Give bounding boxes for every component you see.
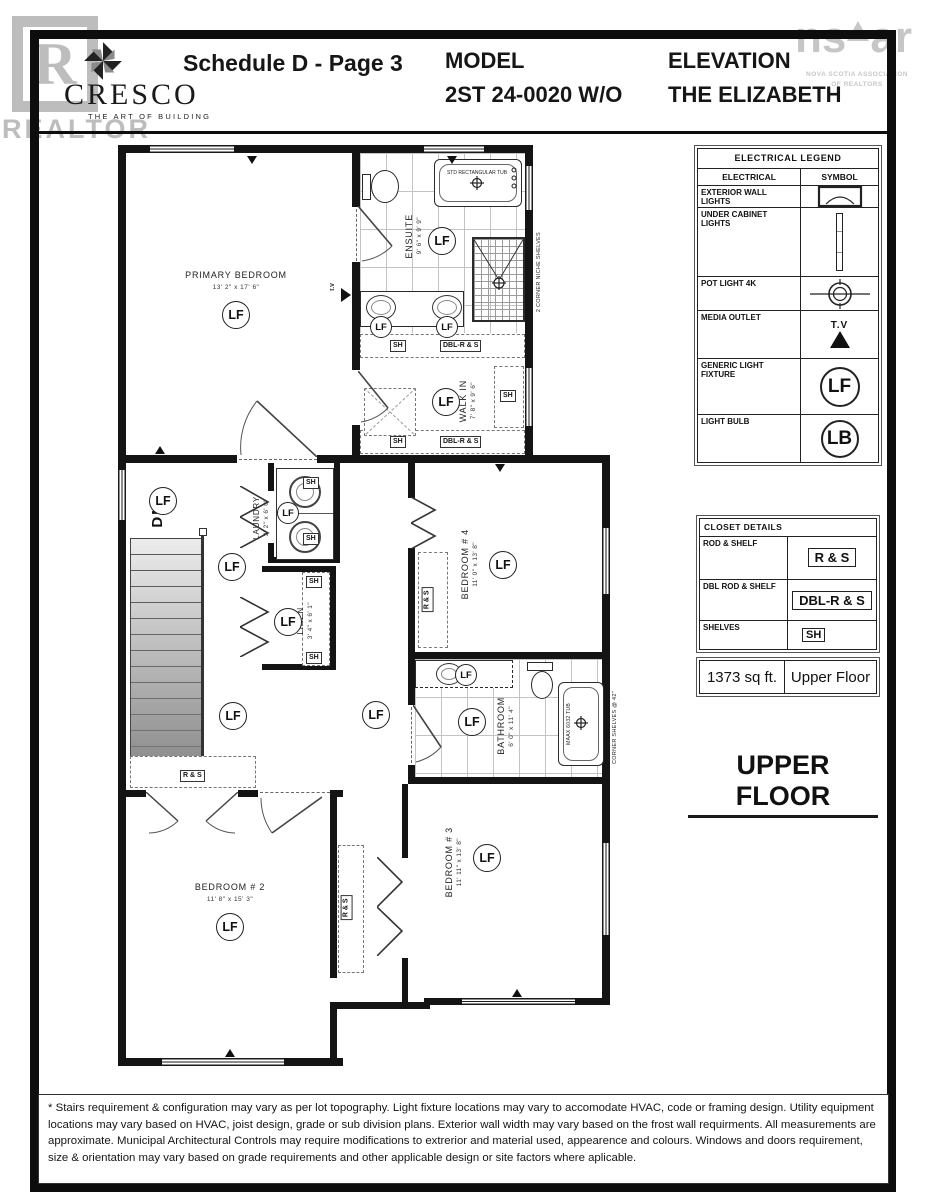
room-dims-primary: 13' 2" x 17' 6" <box>156 284 316 291</box>
dimension-arrow <box>447 156 457 164</box>
dimension-arrow <box>247 156 257 164</box>
window <box>150 145 234 153</box>
drain-icon <box>574 716 588 730</box>
wall-light-icon <box>801 186 878 207</box>
closet-details-table: CLOSET DETAILS ROD & SHELF R & S DBL ROD… <box>699 518 877 650</box>
dimension-arrow <box>155 446 165 454</box>
wall-segment <box>334 463 340 563</box>
tv-icon-text: T.V <box>831 320 848 331</box>
wall-segment <box>408 777 610 784</box>
light-fixture-symbol: LF <box>458 708 486 736</box>
light-fixture-symbol: LF <box>362 701 390 729</box>
light-fixture-symbol: LF <box>274 608 302 636</box>
tv-outlet-label: T.V <box>330 283 336 292</box>
tv-outlet-icon <box>341 288 351 302</box>
schedule-title: Schedule D - Page 3 <box>183 50 403 77</box>
room-dims-bed2: 11' 8" x 15' 3" <box>150 896 310 903</box>
light-fixture-symbol: LF <box>436 316 458 338</box>
light-fixture-symbol: LF <box>222 301 250 329</box>
wall-segment <box>118 145 126 1066</box>
dimension-arrow <box>512 989 522 997</box>
closet-code: R & S <box>808 548 857 567</box>
tv-triangle-icon <box>830 331 850 348</box>
room-label-bathroom: BATHROOM 6' 0" x 11' 4" <box>496 692 515 760</box>
room-label-bed4: BEDROOM # 4 11' 0" x 13' 8" <box>460 520 479 608</box>
wall-segment <box>408 765 415 777</box>
wall-segment <box>330 790 343 797</box>
staircase <box>130 538 203 762</box>
niche-shelves-note: 2 CORNER NICHE SHELVES <box>536 228 542 316</box>
closet-code: SH <box>802 628 825 642</box>
floor-title: UPPER FLOOR <box>688 750 878 818</box>
window <box>525 166 533 210</box>
toilet-tank <box>362 174 371 200</box>
bifold-door <box>240 486 270 548</box>
wall-segment <box>402 958 408 1002</box>
wall-segment <box>126 455 237 463</box>
tv-icon: T.V <box>801 311 878 358</box>
window <box>602 843 610 935</box>
window <box>602 528 610 594</box>
closet-detail-label: DBL ROD & SHELF <box>700 580 788 620</box>
window <box>162 1058 284 1066</box>
area-sqft: 1373 sq ft. <box>700 661 785 693</box>
shower-glass-lines <box>472 237 525 322</box>
light-fixture-symbol: LF <box>370 316 392 338</box>
light-fixture-symbol: LF <box>216 913 244 941</box>
room-label-walkin: WALK IN 7' 8" x 9' 6" <box>458 372 477 430</box>
room-label-bed2: BEDROOM # 2 <box>150 882 310 892</box>
light-fixture-symbol: LF <box>218 553 246 581</box>
cresco-logo-tagline: THE ART OF BUILDING <box>88 112 211 121</box>
legend-col-electrical: ELECTRICAL <box>698 169 801 185</box>
window <box>462 998 575 1005</box>
light-fixture-symbol: LF <box>455 664 477 686</box>
wall-segment <box>408 652 610 659</box>
wall-segment <box>408 463 415 498</box>
shelf-tag: SH <box>390 340 406 352</box>
light-fixture-symbol: LF <box>149 487 177 515</box>
bathtub-label: STD RECTANGULAR TUB <box>444 170 510 176</box>
shelf-tag: SH <box>500 390 516 402</box>
shelf-tag: SH <box>303 477 319 489</box>
light-bulb-icon: LB <box>801 415 878 462</box>
wall-segment <box>408 548 415 652</box>
door-swing <box>239 387 317 457</box>
rod-shelf-tag: R & S <box>422 587 434 612</box>
light-fixture-symbol: LF <box>473 844 501 872</box>
opening-line <box>411 707 412 763</box>
room-label-primary: PRIMARY BEDROOM <box>156 270 316 280</box>
shelf-tag: SH <box>390 436 406 448</box>
cresco-logo-text: CRESCO <box>64 78 199 112</box>
bathtub-maax-label: MAAX 6032 TUB <box>566 696 572 752</box>
double-rod-shelf-tag: DBL-R & S <box>440 340 481 352</box>
legend-label: EXTERIOR WALL LIGHTS <box>698 186 801 207</box>
stair-railing <box>201 530 204 764</box>
door-swing <box>358 371 400 423</box>
legend-label: POT LIGHT 4K <box>698 277 801 310</box>
door-swing <box>260 795 322 850</box>
door-swing <box>358 206 404 262</box>
area-box: 1373 sq ft. Upper Floor <box>699 660 877 694</box>
wall-segment <box>330 1002 430 1009</box>
wall-segment <box>238 790 258 797</box>
legend-label: LIGHT BULB <box>698 415 801 462</box>
wall-segment <box>352 153 360 207</box>
elevation-value: THE ELIZABETH <box>668 82 842 108</box>
model-value: 2ST 24-0020 W/O <box>445 82 622 108</box>
drain-icon <box>470 176 484 190</box>
window <box>118 470 126 520</box>
toilet-tank <box>527 662 553 671</box>
legend-label: MEDIA OUTLET <box>698 311 801 358</box>
light-fixture-icon: LF <box>801 359 878 415</box>
closet-detail-label: SHELVES <box>700 621 788 649</box>
wall-segment <box>402 784 408 858</box>
opening-line <box>260 792 330 793</box>
bifold-door <box>411 497 437 549</box>
room-label-ensuite: ENSUITE 9' 6" x 9' 9" <box>404 200 423 272</box>
stair-newel <box>199 528 207 536</box>
room-label-bed3: BEDROOM # 3 11' 11" x 13' 8" <box>444 818 463 906</box>
dimension-arrow <box>495 464 505 472</box>
legend-col-symbol: SYMBOL <box>801 169 878 185</box>
opening-line <box>239 459 317 460</box>
disclaimer-note: * Stairs requirement & configuration may… <box>38 1094 889 1184</box>
toilet-bowl <box>531 671 553 699</box>
light-fixture-symbol: LF <box>219 702 247 730</box>
door-swing <box>146 792 192 834</box>
shelf-tag: SH <box>306 652 322 664</box>
closet-detail-label: ROD & SHELF <box>700 537 788 579</box>
wall-segment <box>408 659 415 705</box>
bifold-door <box>240 597 270 657</box>
wall-segment <box>352 262 360 370</box>
window <box>424 145 484 153</box>
elevation-label: ELEVATION <box>668 48 791 74</box>
rod-shelf-tag: R & S <box>180 770 205 782</box>
legend-label: UNDER CABINET LIGHTS <box>698 208 801 277</box>
bifold-door <box>377 857 404 956</box>
light-fixture-symbol: LF <box>432 388 460 416</box>
closet-code: DBL-R & S <box>792 591 872 610</box>
wall-segment <box>317 455 610 463</box>
electrical-legend-title: ELECTRICAL LEGEND <box>698 149 878 169</box>
closet-details-title: CLOSET DETAILS <box>700 519 876 537</box>
wall-segment <box>330 797 337 978</box>
double-rod-shelf-tag: DBL-R & S <box>440 436 481 448</box>
light-fixture-symbol: LF <box>428 227 456 255</box>
opening-line <box>356 209 357 261</box>
room-dims: 9' 6" x 9' 9" <box>416 217 423 254</box>
light-fixture-symbol: LF <box>277 502 299 524</box>
legend-label: GENERIC LIGHT FIXTURE <box>698 359 801 415</box>
wall-segment <box>126 790 146 797</box>
tub-faucet-icon <box>510 166 518 192</box>
shelf-tag: SH <box>306 576 322 588</box>
wall-segment <box>330 1002 337 1066</box>
model-label: MODEL <box>445 48 524 74</box>
door-swing <box>413 705 453 763</box>
wall-segment <box>330 566 336 670</box>
rod-shelf-tag: R & S <box>341 895 353 920</box>
window <box>525 368 533 426</box>
toilet-bowl <box>371 170 399 203</box>
under-cabinet-light-icon <box>801 208 878 277</box>
pot-light-icon <box>801 277 878 310</box>
corner-shelves-note: CORNER SHELVES @ 42" <box>612 686 618 770</box>
shelf-tag: SH <box>303 533 319 545</box>
area-floor: Upper Floor <box>785 661 876 693</box>
light-fixture-symbol: LF <box>489 551 517 579</box>
door-swing <box>192 792 238 834</box>
room-name: ENSUITE <box>404 214 414 259</box>
electrical-legend: ELECTRICAL LEGEND ELECTRICAL SYMBOL EXTE… <box>697 148 879 463</box>
dimension-arrow <box>225 1049 235 1057</box>
